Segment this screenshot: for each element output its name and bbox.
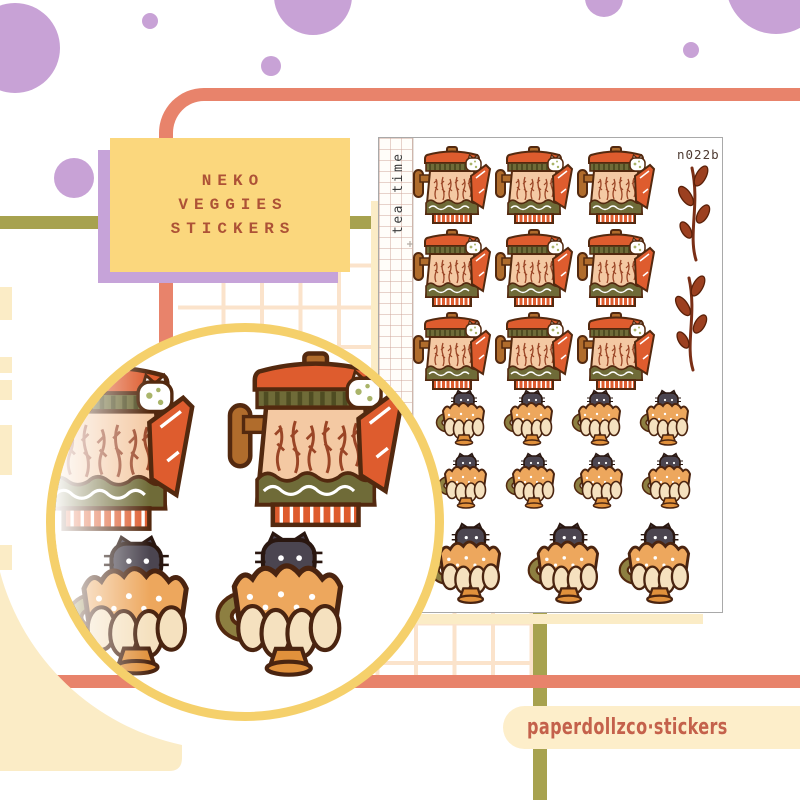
title-line: NEKO (196, 169, 264, 193)
teacup-sticker (645, 454, 690, 509)
title-card: NEKO VEGGIES STICKERS (110, 138, 350, 272)
stitch-dash (0, 357, 12, 373)
teacup-sticker-large (435, 524, 500, 603)
sheet-code: n022b (677, 147, 720, 162)
tea-time-label: tea time (391, 151, 406, 234)
title-line: STICKERS (165, 217, 296, 241)
purple-dot (261, 56, 281, 76)
teapot-sticker (578, 230, 654, 306)
stitch-dash (0, 287, 12, 320)
purple-dot (54, 158, 94, 198)
purple-dot (142, 13, 158, 29)
social-bar: paperdollzco·stickers (503, 706, 800, 749)
leaf-sprig-sticker (676, 164, 713, 260)
purple-dot (0, 3, 60, 93)
stitch-dash (0, 425, 12, 475)
teapot-sticker (578, 147, 654, 223)
edge-fade (55, 332, 150, 712)
leaf-sprig-sticker (673, 274, 710, 370)
teapot-sticker (414, 230, 490, 306)
purple-dot (683, 42, 699, 58)
title-line: VEGGIES (172, 193, 287, 217)
teapot-sticker (496, 230, 572, 306)
product-image: tea time n022b (0, 0, 800, 800)
purple-dot (585, 0, 623, 17)
teapot-sticker (496, 147, 572, 223)
teacup-closeup (225, 533, 341, 674)
purple-dot (274, 0, 352, 35)
teapot-sticker (496, 313, 572, 389)
teacup-sticker (575, 391, 620, 446)
teacup-sticker (507, 391, 552, 446)
purple-dot (726, 0, 800, 34)
teacup-sticker (577, 454, 622, 509)
teacup-sticker (643, 391, 688, 446)
closeup-circle (46, 323, 444, 721)
teapot-closeup (230, 353, 401, 524)
stitch-dash (0, 380, 12, 400)
teacup-sticker (439, 391, 484, 446)
teacup-sticker (509, 454, 554, 509)
teacup-sticker-large (533, 524, 598, 603)
teacup-sticker-large (624, 524, 689, 603)
teapot-sticker (578, 313, 654, 389)
teapot-sticker (414, 147, 490, 223)
teacup-sticker (441, 454, 486, 509)
brand-handle: paperdollzco·stickers (527, 715, 728, 740)
